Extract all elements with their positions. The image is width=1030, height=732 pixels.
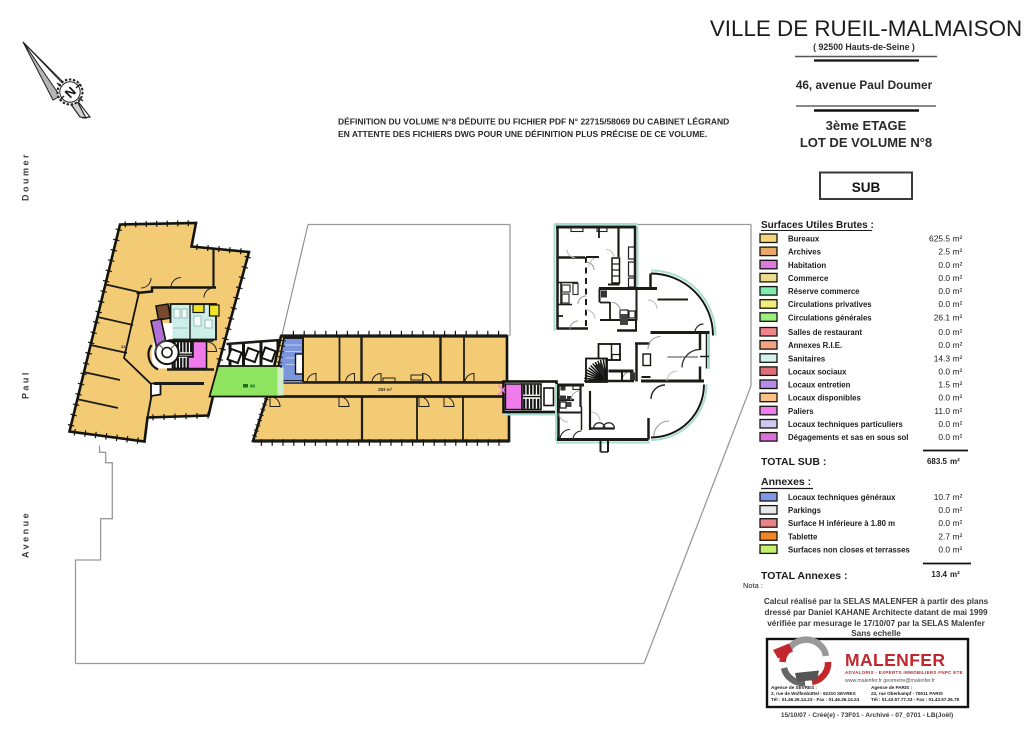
svg-text:2, rue de Wolfenbüttel - 92310: 2, rue de Wolfenbüttel - 92310 SEVRES (771, 691, 856, 696)
svg-text:Parkings: Parkings (788, 506, 822, 515)
svg-text:Locaux techniques généraux: Locaux techniques généraux (788, 493, 896, 502)
svg-text:Habitation: Habitation (788, 261, 826, 270)
svg-text:m²: m² (953, 505, 963, 515)
svg-text:m²: m² (953, 340, 963, 350)
svg-text:0.0: 0.0 (938, 260, 950, 270)
svg-text:SUB: SUB (852, 180, 881, 195)
svg-text:DÉFINITION DU VOLUME N°8 DÉDUI: DÉFINITION DU VOLUME N°8 DÉDUITE DU FICH… (338, 117, 729, 127)
svg-text:Surface H inférieure à 1.80 m: Surface H inférieure à 1.80 m (788, 519, 895, 528)
svg-text:m²: m² (953, 492, 963, 502)
svg-text:m²: m² (950, 570, 960, 579)
svg-text:Locaux disponibles: Locaux disponibles (788, 394, 861, 403)
svg-text:Tablette: Tablette (788, 532, 818, 541)
svg-text:0.0: 0.0 (938, 286, 950, 296)
svg-text:0.0: 0.0 (938, 366, 950, 376)
svg-text:0.0: 0.0 (938, 327, 950, 337)
svg-text:Locaux techniques particuliers: Locaux techniques particuliers (788, 420, 903, 429)
svg-text:Tél : 01.43.57.77.33 - Fax : 0: Tél : 01.43.57.77.33 - Fax : 01.43.57.26… (871, 697, 960, 702)
svg-text:Locaux sociaux: Locaux sociaux (788, 367, 847, 376)
svg-text:0.0: 0.0 (938, 393, 950, 403)
svg-text:m²: m² (953, 531, 963, 541)
svg-text:0.0: 0.0 (938, 299, 950, 309)
svg-text:VILLE DE RUEIL-MALMAISON: VILLE DE RUEIL-MALMAISON (710, 16, 1022, 41)
svg-text:683.5: 683.5 (927, 457, 948, 466)
svg-text:m²: m² (953, 380, 963, 390)
svg-text:Calcul réalisé par la SELAS MA: Calcul réalisé par la SELAS MALENFER à p… (764, 597, 989, 606)
svg-text:LOT DE VOLUME N°8: LOT DE VOLUME N°8 (800, 135, 932, 150)
svg-text:46, avenue Paul Doumer: 46, avenue Paul Doumer (796, 78, 933, 92)
svg-text:Surfaces Utiles Brutes :: Surfaces Utiles Brutes : (761, 220, 874, 231)
svg-text:Paliers: Paliers (788, 407, 814, 416)
svg-text:1.5: 1.5 (938, 380, 950, 390)
svg-text:26.1: 26.1 (934, 312, 951, 322)
svg-text:m²: m² (953, 286, 963, 296)
svg-text:625.5: 625.5 (929, 234, 950, 244)
svg-text:m²: m² (953, 518, 963, 528)
svg-text:P a u l: P a u l (21, 373, 31, 399)
svg-text:m²: m² (953, 260, 963, 270)
svg-text:m²: m² (950, 457, 960, 466)
svg-text:0.0: 0.0 (938, 419, 950, 429)
svg-text:0.0: 0.0 (938, 544, 950, 554)
svg-text:13.4: 13.4 (931, 570, 947, 579)
svg-text:23, rue Oberkampf - 75011 PARI: 23, rue Oberkampf - 75011 PARIS (871, 691, 943, 696)
svg-text:Sans echelle: Sans echelle (851, 629, 901, 638)
svg-text:m²: m² (953, 432, 963, 442)
svg-text:15/10/07 - Créé(e) - 73F01 - A: 15/10/07 - Créé(e) - 73F01 - Archivé - 0… (781, 712, 953, 719)
svg-text:333: 333 (121, 344, 128, 349)
svg-text:m²: m² (953, 353, 963, 363)
svg-text:Sanitaires: Sanitaires (788, 354, 826, 363)
svg-text:TOTAL Annexes :: TOTAL Annexes : (761, 570, 848, 582)
svg-text:Annexes :: Annexes : (761, 476, 811, 488)
svg-text:Tél : 01.46.26.14.23 - Fax : 0: Tél : 01.46.26.14.23 - Fax : 01.46.26.14… (771, 697, 860, 702)
svg-text:m²: m² (953, 366, 963, 376)
svg-text:m²: m² (953, 544, 963, 554)
svg-text:ADVALORIS - EXPERTS IMMOBILIER: ADVALORIS - EXPERTS IMMOBILIERS FNPC ETE (845, 670, 963, 675)
svg-text:11.0: 11.0 (934, 406, 950, 416)
svg-text:Archives: Archives (788, 248, 822, 257)
svg-text:Agence de SEVRES :: Agence de SEVRES : (771, 685, 817, 690)
svg-text:TOTAL SUB :: TOTAL SUB : (761, 456, 826, 468)
svg-text:Bureaux: Bureaux (788, 235, 820, 244)
svg-text:0.0: 0.0 (938, 340, 950, 350)
svg-text:Surfaces non closes et terrass: Surfaces non closes et terrasses (788, 545, 910, 554)
svg-text:Annexes R.I.E.: Annexes R.I.E. (788, 341, 842, 350)
svg-text:( 92500 Hauts-de-Seine ): ( 92500 Hauts-de-Seine ) (813, 42, 915, 52)
svg-text:www.malenfer.fr geometre@m: www.malenfer.fr geometre@malenfer.fr (845, 678, 935, 684)
svg-text:m²: m² (953, 312, 963, 322)
svg-text:EN ATTENTE DES FICHIERS DWG PO: EN ATTENTE DES FICHIERS DWG POUR UNE DÉF… (338, 129, 707, 139)
svg-text:Agence de PARIS :: Agence de PARIS : (871, 685, 912, 690)
svg-text:2.7: 2.7 (938, 531, 950, 541)
svg-text:MALENFER: MALENFER (845, 650, 945, 670)
svg-text:vérifiée par mesurage le 17/10: vérifiée par mesurage le 17/10/07 par la… (767, 619, 985, 628)
svg-text:m²: m² (953, 273, 963, 283)
svg-text:0.0: 0.0 (938, 518, 950, 528)
svg-text:0.0: 0.0 (938, 273, 950, 283)
svg-text:D o u m e r: D o u m e r (21, 154, 31, 201)
svg-text:m²: m² (953, 247, 963, 257)
svg-text:Salles de restaurant: Salles de restaurant (788, 328, 863, 337)
svg-text:10.7: 10.7 (934, 492, 951, 502)
svg-text:Circulations générales: Circulations générales (788, 313, 872, 322)
svg-text:Nota :: Nota : (743, 581, 763, 590)
svg-text:m²: m² (953, 327, 963, 337)
svg-text:Circulations privatives: Circulations privatives (788, 300, 872, 309)
svg-text:0.0: 0.0 (938, 505, 950, 515)
svg-text:m²: m² (953, 299, 963, 309)
svg-text:0.0: 0.0 (938, 432, 950, 442)
svg-text:2.5: 2.5 (938, 247, 950, 257)
svg-text:dressé par Daniel KAHANE Archi: dressé par Daniel KAHANE Architecte data… (764, 608, 988, 617)
svg-text:m²: m² (953, 406, 963, 416)
svg-text:Locaux entretien: Locaux entretien (788, 381, 851, 390)
svg-text:14.3: 14.3 (934, 353, 951, 363)
svg-text:A v e n u e: A v e n u e (21, 513, 31, 558)
svg-text:m²: m² (953, 393, 963, 403)
svg-text:Dégagements et sas en sous sol: Dégagements et sas en sous sol (788, 433, 908, 442)
svg-text:283 m²: 283 m² (378, 387, 393, 392)
svg-text:Réserve commerce: Réserve commerce (788, 287, 860, 296)
svg-text:Commerce: Commerce (788, 274, 829, 283)
svg-text:m²: m² (953, 419, 963, 429)
svg-text:3ème ETAGE: 3ème ETAGE (826, 118, 907, 133)
svg-text:m²: m² (953, 234, 963, 244)
